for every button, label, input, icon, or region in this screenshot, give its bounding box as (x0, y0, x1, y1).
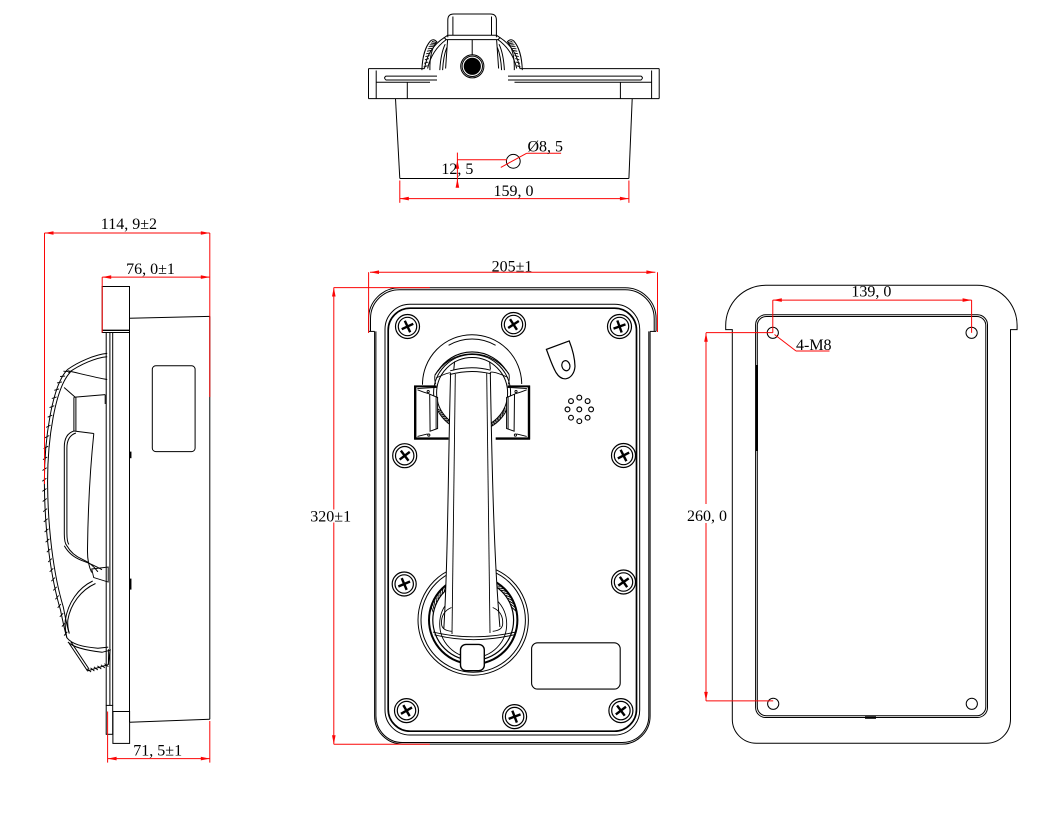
svg-text:Ø8, 5: Ø8, 5 (528, 138, 564, 155)
svg-text:114, 9±2: 114, 9±2 (101, 216, 157, 233)
svg-text:159, 0: 159, 0 (494, 183, 534, 200)
svg-text:4-M8: 4-M8 (796, 337, 832, 354)
svg-text:12, 5: 12, 5 (441, 161, 473, 178)
svg-text:260, 0: 260, 0 (687, 508, 727, 525)
svg-text:320±1: 320±1 (310, 509, 351, 526)
svg-text:71, 5±1: 71, 5±1 (133, 743, 182, 760)
svg-text:139, 0: 139, 0 (851, 283, 891, 300)
svg-text:76, 0±1: 76, 0±1 (126, 261, 175, 278)
svg-text:205±1: 205±1 (492, 259, 533, 276)
